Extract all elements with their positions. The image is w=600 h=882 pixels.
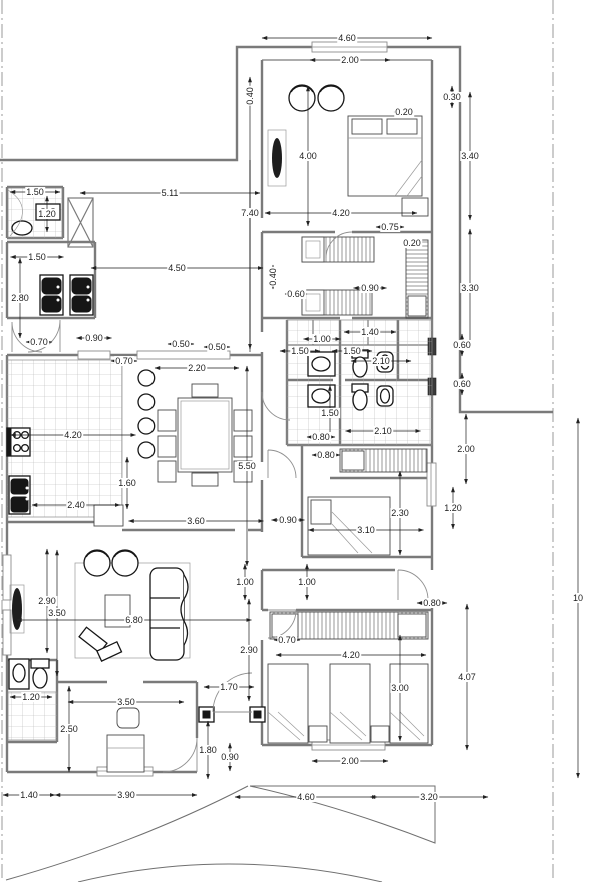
bedroom4-furniture (268, 612, 428, 743)
desk (107, 735, 144, 772)
chair (192, 384, 218, 397)
chair (192, 473, 218, 486)
nightstand (309, 726, 327, 742)
plant (272, 138, 282, 178)
bedroom2-furniture (302, 237, 428, 318)
desk-chair (117, 708, 139, 728)
pillow (387, 119, 417, 134)
chair (158, 461, 176, 482)
plant (12, 588, 22, 630)
toilet (33, 668, 47, 688)
stool (138, 370, 154, 386)
nightstand (371, 726, 389, 742)
single-bed (390, 664, 428, 743)
chair (158, 410, 176, 431)
chair (158, 436, 176, 457)
dining-table (178, 398, 232, 472)
stool (138, 442, 154, 458)
master-bedroom-furniture (268, 85, 428, 216)
single-bed (330, 664, 370, 743)
wash-basin (12, 221, 32, 235)
chair (234, 436, 252, 457)
guest-bath-tiles (8, 692, 57, 740)
floor-plan-canvas: 4.602.000.300.200.404.003.407.405.111.50… (0, 0, 600, 882)
pillow (352, 119, 382, 134)
stool (138, 394, 154, 410)
chair (234, 410, 252, 431)
toilet (353, 390, 367, 410)
single-bed (268, 664, 308, 743)
stool (138, 418, 154, 434)
toilet (353, 357, 367, 377)
kitchen-cart (94, 505, 123, 526)
sofa (150, 568, 184, 660)
pillow (311, 500, 331, 524)
coffee-table (105, 595, 130, 627)
bedroom3-furniture (308, 449, 427, 555)
toilet-tank (31, 659, 49, 668)
chair (234, 461, 252, 482)
floor-plan-drawing (0, 0, 600, 882)
living-room-furniture (10, 550, 190, 661)
